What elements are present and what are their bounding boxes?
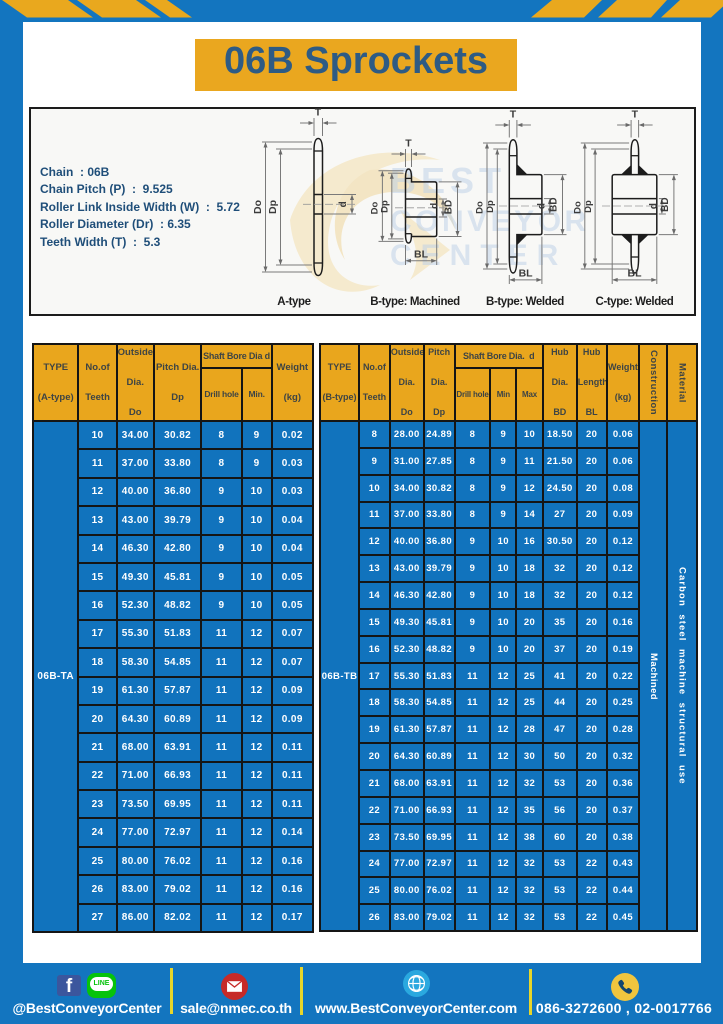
svg-text:T: T — [632, 109, 639, 121]
svg-text:d: d — [649, 203, 660, 209]
svg-text:BL: BL — [519, 268, 534, 280]
svg-text:d: d — [430, 203, 441, 209]
svg-text:T: T — [510, 109, 517, 121]
svg-text:d: d — [338, 201, 349, 207]
svg-text:Do: Do — [252, 200, 264, 214]
svg-text:C-type: Welded: C-type: Welded — [596, 296, 674, 308]
svg-text:Do: Do — [572, 201, 583, 214]
svg-text:Dp: Dp — [485, 200, 496, 213]
svg-text:d: d — [537, 203, 548, 209]
svg-text:BL: BL — [628, 268, 643, 280]
svg-text:BD: BD — [444, 200, 455, 214]
svg-text:Dp: Dp — [267, 200, 279, 214]
svg-text:B-type: Machined: B-type: Machined — [370, 296, 460, 308]
svg-text:BL: BL — [414, 249, 429, 261]
svg-text:T: T — [405, 138, 412, 150]
svg-text:BD: BD — [660, 197, 671, 211]
svg-text:A-type: A-type — [277, 296, 310, 308]
svg-text:Do: Do — [475, 201, 486, 214]
svg-text:Dp: Dp — [380, 200, 391, 213]
svg-text:BD: BD — [549, 197, 560, 211]
svg-text:T: T — [315, 107, 322, 119]
svg-text:B-type: Welded: B-type: Welded — [486, 296, 564, 308]
svg-text:Dp: Dp — [583, 200, 594, 213]
